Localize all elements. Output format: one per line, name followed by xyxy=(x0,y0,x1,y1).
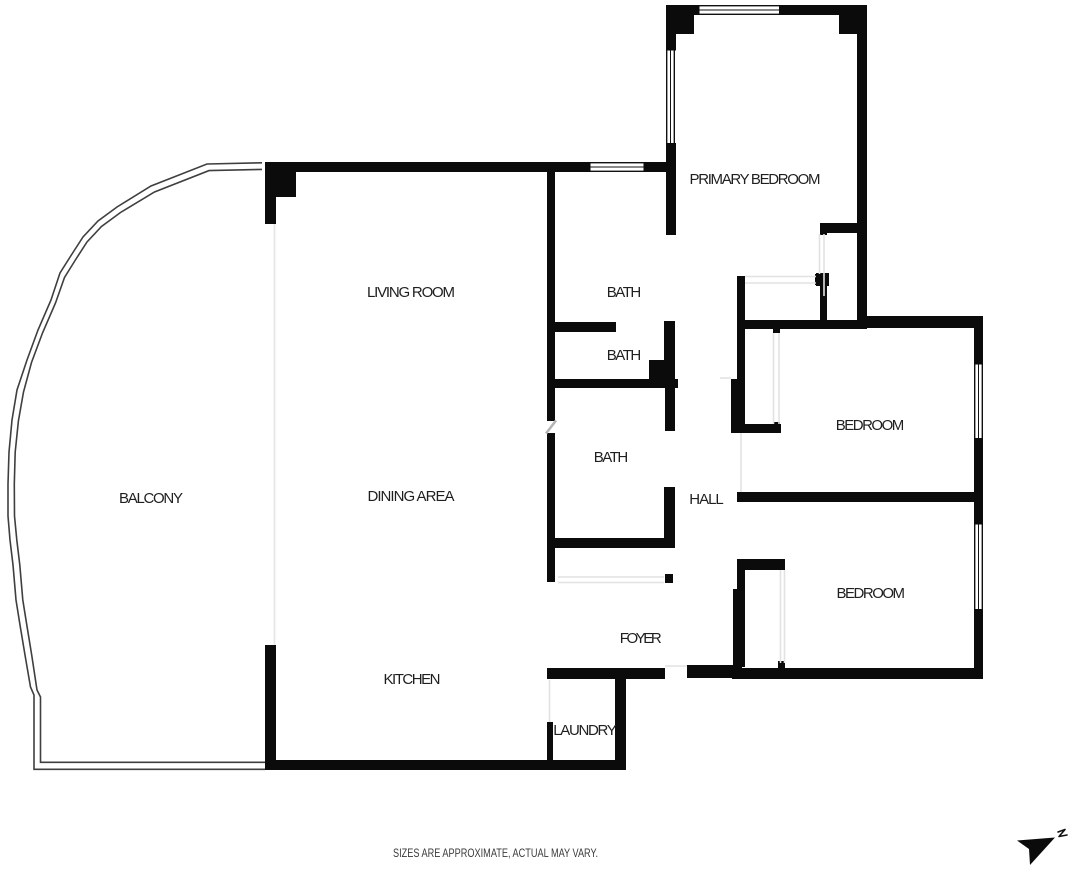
svg-text:SIZES ARE APPROXIMATE, ACTUAL: SIZES ARE APPROXIMATE, ACTUAL MAY VARY. xyxy=(393,848,598,860)
svg-text:LAUNDRY: LAUNDRY xyxy=(553,722,617,739)
svg-text:LIVING ROOM: LIVING ROOM xyxy=(367,284,455,301)
svg-text:BATH: BATH xyxy=(607,347,642,364)
svg-text:BEDROOM: BEDROOM xyxy=(836,417,905,434)
svg-text:FOYER: FOYER xyxy=(620,630,662,647)
svg-text:HALL: HALL xyxy=(689,491,724,508)
svg-text:BATH: BATH xyxy=(594,449,629,466)
svg-text:PRIMARY BEDROOM: PRIMARY BEDROOM xyxy=(690,171,821,188)
svg-text:BATH: BATH xyxy=(607,284,642,301)
svg-text:KITCHEN: KITCHEN xyxy=(384,671,441,688)
svg-text:DINING AREA: DINING AREA xyxy=(368,488,455,505)
svg-text:BALCONY: BALCONY xyxy=(119,490,183,507)
svg-text:BEDROOM: BEDROOM xyxy=(837,585,906,602)
